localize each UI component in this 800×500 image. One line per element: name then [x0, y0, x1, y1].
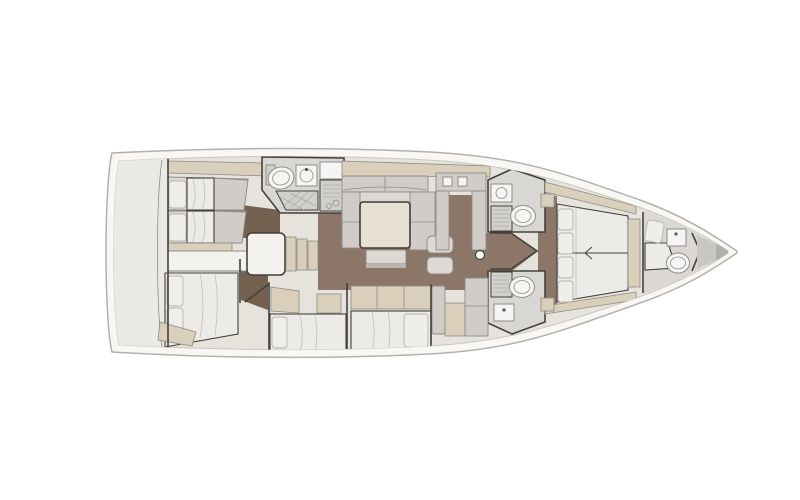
step-1 [286, 237, 296, 271]
companionway-landing [247, 233, 285, 275]
crew-pillow [644, 220, 664, 244]
pillow-1 [167, 276, 183, 306]
faucet [305, 168, 308, 171]
berth-2-duvet [187, 211, 214, 243]
pillow-2 [558, 233, 573, 254]
berth-1-duvet [187, 178, 214, 210]
aft-head [262, 157, 344, 213]
chart-arm-left [436, 191, 449, 250]
chart-arm-right [472, 191, 486, 250]
berth-2-foot [214, 211, 246, 243]
sink-icon [494, 304, 514, 321]
cabinet-row [351, 286, 431, 309]
berth-2-pillow [169, 214, 186, 241]
sofa-return-left [342, 192, 360, 248]
sink-icon [491, 184, 512, 202]
saloon-table [360, 202, 410, 248]
berth-1-foot [214, 178, 248, 210]
cabinet-strip [168, 243, 232, 251]
pillow [272, 317, 287, 348]
step-2 [297, 239, 307, 270]
sink-icon [667, 229, 686, 246]
faucet [502, 308, 505, 311]
yacht-floorplan [0, 0, 800, 500]
side-table-2 [541, 298, 554, 311]
stool-2 [427, 257, 453, 274]
tall-locker [465, 278, 488, 336]
pillow [404, 314, 428, 347]
port-mid-head [488, 169, 545, 232]
starboard-mid-head [488, 271, 545, 334]
starboard-guest-cabin-fwd [351, 284, 431, 353]
toilet-icon [667, 253, 690, 273]
bench-shadow [366, 264, 406, 268]
cabinet-1 [271, 287, 299, 313]
berth-1-pillow [169, 181, 186, 208]
chart-instrument-2 [458, 177, 467, 186]
passage-berth-infill [168, 251, 248, 271]
counter [445, 303, 467, 336]
foot-bench [628, 219, 640, 287]
chart-instrument-1 [443, 177, 452, 186]
galley-locker [320, 162, 343, 179]
cabinet-2 [317, 294, 341, 313]
shelf [168, 161, 268, 176]
floorplan-svg [0, 0, 800, 500]
fridge [432, 286, 445, 334]
step-3 [308, 241, 318, 270]
coffee-bench [366, 250, 406, 264]
pillow-1 [558, 209, 573, 230]
toilet-icon [511, 206, 536, 227]
mast-post [476, 251, 485, 260]
side-table-1 [541, 194, 554, 207]
pillow-3 [558, 257, 573, 278]
toilet-icon [510, 277, 535, 298]
pillow-4 [558, 281, 573, 302]
faucet [674, 232, 677, 235]
